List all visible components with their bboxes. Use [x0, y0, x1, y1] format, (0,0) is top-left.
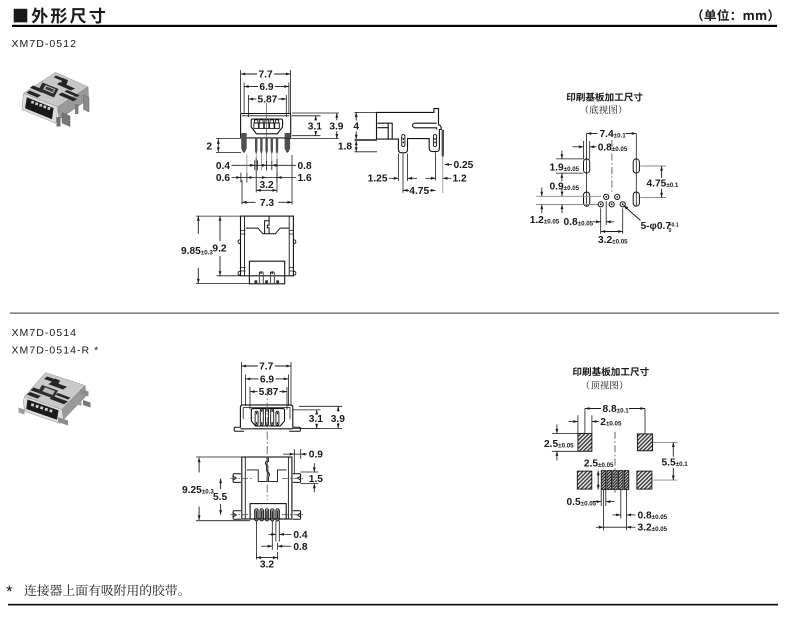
svg-text:0.25: 0.25: [454, 160, 474, 171]
svg-text:1.6: 1.6: [298, 173, 312, 184]
svg-text:XM7D-0514-R *: XM7D-0514-R *: [12, 345, 100, 357]
svg-text:XM7D-0514: XM7D-0514: [12, 327, 77, 339]
svg-text:3.1: 3.1: [308, 121, 322, 132]
svg-text:7.3: 7.3: [260, 198, 274, 209]
svg-text:0.4: 0.4: [293, 530, 307, 541]
svg-text:0.8: 0.8: [293, 542, 307, 553]
svg-text:2: 2: [206, 141, 212, 152]
svg-text:0.8: 0.8: [298, 161, 312, 172]
svg-text:4.75: 4.75: [409, 186, 429, 197]
svg-text:3.9: 3.9: [329, 121, 343, 132]
svg-text:4: 4: [353, 122, 359, 133]
svg-text:6.9: 6.9: [259, 82, 273, 93]
svg-text:1.2: 1.2: [453, 174, 467, 185]
svg-text:0: 0: [669, 228, 672, 234]
svg-text:5.5: 5.5: [213, 492, 227, 503]
svg-text:3.2: 3.2: [260, 559, 274, 570]
svg-text:3.1: 3.1: [309, 414, 323, 425]
svg-text:1.25: 1.25: [368, 174, 388, 185]
svg-text:XM7D-0512: XM7D-0512: [12, 38, 77, 50]
svg-text:0.4: 0.4: [216, 161, 230, 172]
svg-text:3.2: 3.2: [260, 180, 274, 191]
svg-text:5.87: 5.87: [257, 95, 277, 106]
svg-text:6.9: 6.9: [260, 375, 274, 386]
svg-text:3.9: 3.9: [331, 414, 345, 425]
svg-text:1.5: 1.5: [309, 474, 323, 485]
svg-text:*: *: [6, 582, 13, 601]
svg-text:9.2: 9.2: [212, 244, 226, 255]
svg-text:0.6: 0.6: [216, 173, 230, 184]
svg-text:7.7: 7.7: [259, 70, 273, 81]
svg-text:5.87: 5.87: [259, 387, 279, 398]
svg-text:7.7: 7.7: [259, 362, 273, 373]
svg-text:1.8: 1.8: [338, 142, 352, 153]
svg-text:5-φ0.7: 5-φ0.7: [641, 221, 672, 232]
svg-text:0.9: 0.9: [309, 450, 323, 461]
